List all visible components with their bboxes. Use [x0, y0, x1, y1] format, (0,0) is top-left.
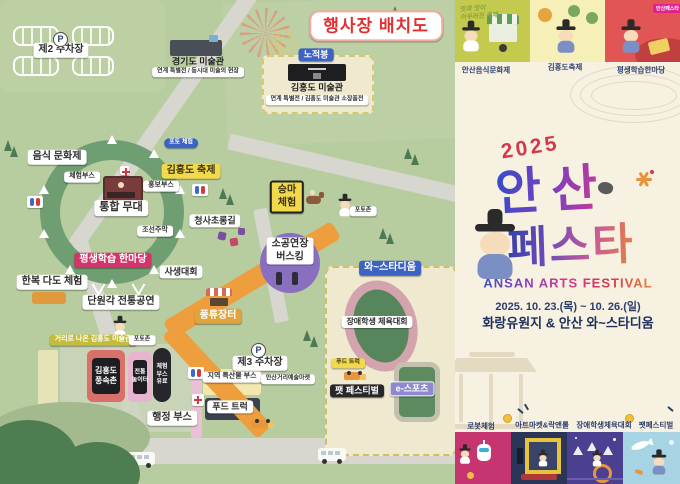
- stage-figure: [118, 182, 124, 188]
- street-museum-label: 거리로 나온 김홍도 미술관: [50, 335, 137, 346]
- tent-icon: [107, 135, 117, 144]
- tent-icon: [149, 149, 159, 158]
- speaker-icon: [517, 448, 523, 464]
- building-sign: [308, 68, 326, 70]
- kimhongdo-festival-label: 김홍도 축제: [162, 164, 221, 179]
- nojeokbong-label: 노적봉: [299, 48, 334, 61]
- lifelong-learning-label: 평생학습 한마당: [74, 253, 151, 268]
- event-panel-robot: [455, 432, 511, 484]
- event-panel-sports: [567, 432, 623, 484]
- wheelchair-icon: [593, 464, 612, 483]
- festa-badge: 안산페스타: [653, 4, 680, 13]
- kimhongdo-character: [650, 449, 668, 474]
- food-culture-label: 음식 문화제: [28, 150, 87, 165]
- experience-booth-label: 체험부스: [64, 172, 100, 183]
- parking-icon: P: [53, 32, 68, 47]
- robot-icon: [477, 444, 491, 461]
- disabled-sports-label: 장애학생 체육대회: [341, 316, 412, 328]
- tree-icon: [586, 12, 598, 24]
- market-label: 풍류장터: [195, 309, 242, 324]
- tent-icon: [573, 446, 583, 455]
- tent-icon: [107, 279, 117, 288]
- tree-icon: [10, 146, 18, 157]
- panel-label-food: 안산음식문화제: [462, 65, 510, 76]
- tea-mat-icon: [32, 292, 66, 304]
- poster-panel-learning: 안산페스타: [605, 0, 680, 62]
- tent-icon: [175, 229, 185, 238]
- street-art-market-label: 안산거리예술마켓: [261, 374, 315, 384]
- kimhongdo-museum-sub: 연계 특별전 / 김홍도 미술관 소장품전: [266, 95, 369, 105]
- map-title: 행사장 배치도: [309, 10, 443, 41]
- first-aid-icon: [192, 394, 204, 406]
- event-label-pet: 팻페스티벌: [639, 420, 674, 431]
- event-label-sports: 장애학생체육대회: [576, 420, 631, 431]
- lantern-icon: [217, 231, 226, 240]
- festival-poster: 안산페스타 안산음식문화제 김홍도축제 평생학습한마당 맛과 멋이 어우러진 축…: [455, 0, 680, 484]
- parking3-label: 제3 주차장: [232, 356, 287, 371]
- track-line: [567, 478, 623, 480]
- horse-riding-label: 승마체험: [270, 181, 304, 214]
- gyeonggi-museum-building: [170, 40, 222, 56]
- tent-icon: [39, 229, 49, 238]
- food-cart-icon: [489, 24, 517, 42]
- parking-icon: P: [251, 343, 266, 358]
- parking-lot-row: [13, 56, 59, 76]
- athlete-character: [591, 450, 603, 467]
- bubble-icon: [669, 440, 674, 445]
- busking-label: 소공연장버스킹: [267, 238, 314, 265]
- photo-experience-label: 포토 체험: [164, 138, 198, 148]
- esports-label: e-스포츠: [390, 381, 435, 396]
- paid-booth-label: 체험부스유료: [151, 363, 172, 388]
- event-panel-pet: [623, 432, 680, 484]
- danwongak-label: 단원각 전통공연: [82, 295, 159, 310]
- stage-floor: [107, 192, 135, 198]
- kimhongdo-mascot: [470, 209, 520, 279]
- tree-icon: [310, 336, 318, 347]
- event-label-robot: 로봇체험: [467, 421, 495, 432]
- main-stage-label: 통합 무대: [94, 200, 148, 216]
- tent-icon: [65, 265, 75, 274]
- tree-icon: [386, 233, 394, 244]
- event-panel-artmarket: [511, 432, 567, 484]
- lantern-icon: [229, 237, 238, 246]
- cart-wheel-icon: [499, 44, 507, 52]
- panel-label-learning: 평생학습한마당: [617, 65, 665, 76]
- panel-label-kimhongdo: 김홍도축제: [548, 62, 583, 73]
- sketch-contest-label: 사생대회: [159, 265, 202, 278]
- building-window: [209, 35, 218, 42]
- coin-icon: [503, 414, 512, 423]
- kimhongdo-museum-building: [288, 64, 346, 81]
- bus-icon: [318, 448, 346, 461]
- trad-playground-label: 전통놀이터: [127, 369, 154, 386]
- tree-icon: [226, 194, 234, 205]
- gyeonggi-museum-sub: 연계 특별전 / 동시대 미술의 현장: [152, 67, 244, 77]
- market-tent-icon: [206, 288, 232, 296]
- lantern-road-label: 청사초롱길: [189, 214, 240, 227]
- market-table-icon: [210, 298, 228, 306]
- restroom-icon: [27, 196, 43, 208]
- local-products-label: 지역 특산물 부스: [203, 372, 262, 383]
- poster-title-2: 페스타: [506, 208, 636, 276]
- photo-zone-label: 포토존: [129, 335, 156, 345]
- star-icon: [575, 437, 577, 439]
- horse-icon: [306, 196, 321, 204]
- kimhongdo-museum-label: 김홍도 미술관: [286, 81, 348, 94]
- lantern-icon: [238, 228, 245, 235]
- stadium-sketch: [591, 81, 677, 110]
- fish-icon: [630, 439, 649, 452]
- first-aid-tent-icon: [120, 166, 129, 175]
- poster-panel-kimhongdo: [530, 0, 605, 62]
- poster-venue: 화랑유원지 & 안산 와~스타디움: [482, 313, 653, 332]
- star-icon: [613, 438, 616, 441]
- stadium-food-truck-label: 푸드 트럭: [331, 358, 365, 368]
- tree-icon: [568, 5, 580, 17]
- stage-frame-icon: [525, 438, 561, 474]
- student-character: [619, 19, 643, 53]
- tree-icon: [538, 8, 552, 22]
- venue-map: P 제2 주차장 경기도 미술관 연계 특별전 / 동시대 미술의 현장 행사장…: [0, 0, 455, 484]
- stadium-label: 와~스타디움: [359, 261, 421, 276]
- sparkle-icon: [635, 170, 653, 188]
- event-label-artmarket: 아트마켓&락앤롤: [515, 420, 569, 431]
- poster-slogan: 맛과 멋이 어우러진 축제: [459, 4, 498, 23]
- pr-booth-label: 홍보부스: [143, 181, 179, 192]
- kimhongdo-character: [554, 19, 578, 53]
- photo-zone-label: 포토존: [350, 206, 377, 216]
- road: [227, 134, 455, 203]
- festival-map-poster: P 제2 주차장 경기도 미술관 연계 특별전 / 동시대 미술의 현장 행사장…: [0, 0, 680, 484]
- restroom-icon: [192, 184, 208, 196]
- parking-lot-row: [72, 56, 114, 76]
- folk-village-label: 김홍도풍속촌: [90, 365, 122, 387]
- chef-character: [460, 21, 482, 52]
- tent-icon: [39, 185, 49, 194]
- sparkle-icon: [667, 406, 674, 412]
- pet-toy-icon: [635, 469, 644, 475]
- stage-base: [521, 474, 557, 480]
- tent-icon: [603, 446, 613, 455]
- stage-structure: [103, 176, 143, 202]
- joseon-tavern-label: 조선주막: [137, 226, 173, 237]
- food-truck-label: 푸드 트럭: [207, 400, 253, 413]
- admin-booth-label: 행정 부스: [147, 411, 197, 426]
- kimhongdo-character: [458, 444, 472, 464]
- pet-festival-label: 팻 페스티벌: [330, 384, 384, 397]
- bulb-icon: [467, 472, 474, 479]
- building-door: [313, 73, 321, 79]
- tree-icon: [411, 154, 419, 165]
- hanbok-tea-label: 한복 다도 체험: [17, 275, 88, 290]
